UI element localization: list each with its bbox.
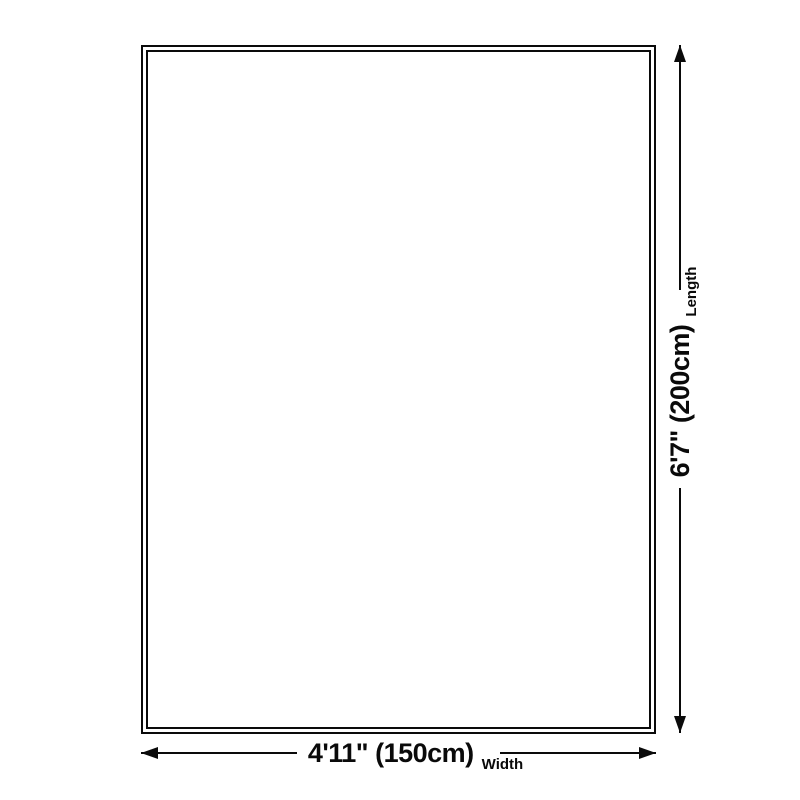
- length-name: Length: [684, 267, 699, 317]
- width-value: 4'11" (150cm): [308, 740, 474, 767]
- arrow-left-icon: [141, 752, 297, 754]
- size-diagram: 4'11" (150cm) Width 6'7" (200cm) Length: [0, 0, 800, 800]
- length-value: 6'7" (200cm): [667, 325, 694, 478]
- length-dimension: 6'7" (200cm) Length: [664, 45, 696, 733]
- length-label: 6'7" (200cm) Length: [667, 301, 694, 478]
- width-dimension: 4'11" (150cm) Width: [141, 737, 656, 769]
- arrow-down-icon: [679, 488, 681, 733]
- arrow-right-icon: [500, 752, 656, 754]
- width-label: 4'11" (150cm) Width: [308, 740, 489, 767]
- product-outline-inner-border: [146, 50, 651, 729]
- width-name: Width: [482, 757, 524, 772]
- arrow-up-icon: [679, 45, 681, 290]
- product-outline: [141, 45, 656, 734]
